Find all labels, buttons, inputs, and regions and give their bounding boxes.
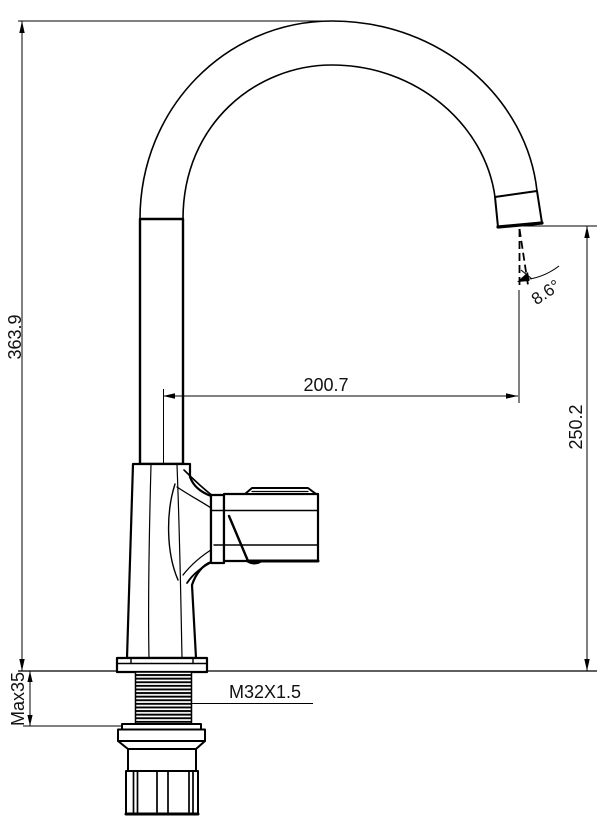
faucet-technical-drawing: 363.9 200.7 250.2 8.6° Max35 M32X1.5 — [0, 0, 613, 835]
faucet-body — [127, 464, 211, 658]
dimension-max-thickness — [23, 671, 122, 726]
locknut-barrel — [128, 749, 196, 771]
dim-text-max-thickness: Max35 — [8, 672, 28, 726]
dim-text-spout-reach: 200.7 — [303, 375, 348, 395]
arrowhead-up — [19, 21, 24, 33]
locknut-taper — [118, 741, 205, 749]
dim-text-total-height: 363.9 — [5, 314, 25, 359]
riser-pipe — [140, 219, 183, 464]
thread-spec-label: M32X1.5 — [229, 682, 301, 702]
locknut-band — [118, 730, 205, 742]
faucet-outline — [117, 21, 542, 814]
arrowhead-down — [584, 659, 589, 671]
arrowhead-up — [27, 671, 32, 682]
threaded-shank — [136, 672, 192, 724]
dim-text-outlet-angle: 8.6° — [528, 276, 564, 309]
handle-ring — [211, 495, 224, 563]
handle-nub — [246, 561, 263, 564]
spout-nozzle — [495, 191, 542, 227]
spout-curve — [140, 21, 537, 219]
arrowhead-right — [506, 393, 518, 398]
technical-drawing-page: 363.9 200.7 250.2 8.6° Max35 M32X1.5 — [0, 0, 613, 835]
handle-body — [224, 494, 318, 561]
arrowhead-down — [27, 715, 32, 726]
arrowhead-down — [19, 659, 24, 671]
arrowhead-up — [584, 226, 589, 238]
dim-text-outlet-height: 250.2 — [566, 404, 586, 449]
